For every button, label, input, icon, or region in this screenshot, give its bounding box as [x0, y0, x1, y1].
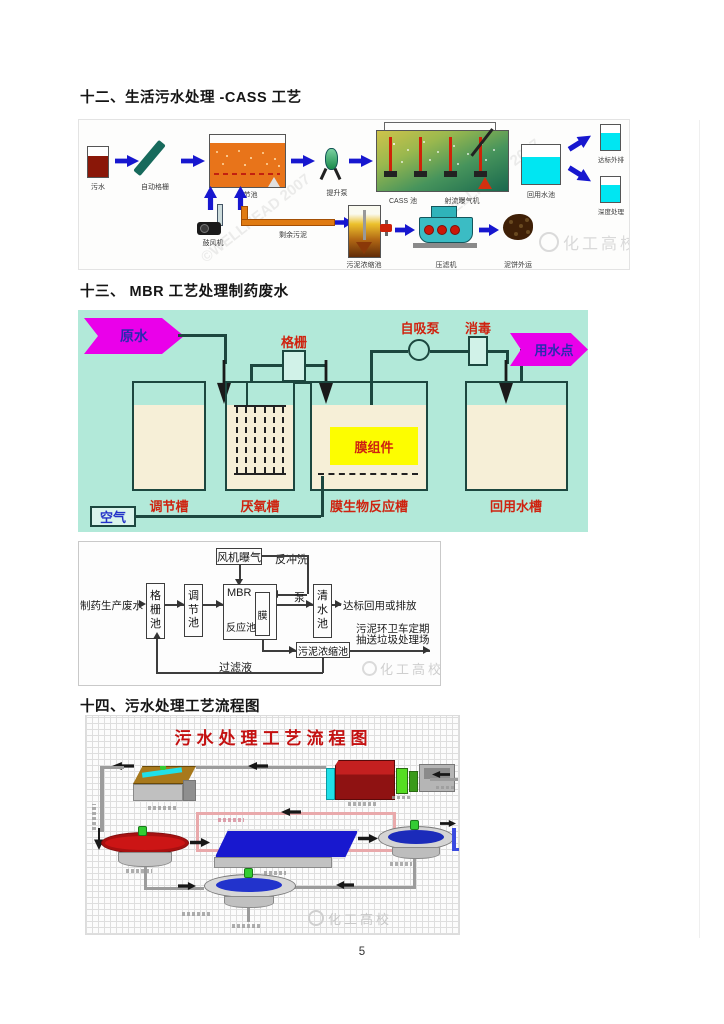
reuse-water-tank — [465, 381, 568, 491]
backwash-label: 反冲洗 — [275, 551, 308, 567]
anaerobic-media — [236, 407, 284, 473]
advanced-treatment-label: 深度处理 — [585, 206, 630, 216]
screen-label: 格栅 — [274, 332, 314, 351]
clarifier-drive — [410, 820, 419, 830]
flow-line — [350, 650, 430, 652]
clean-water-tank-label: 清水池 — [317, 590, 329, 631]
diagram-title: 污水处理工艺流程图 — [136, 724, 411, 749]
air-arrow — [204, 186, 217, 210]
fan-aeration-box: 风机曝气 — [216, 548, 262, 565]
tiny-label — [390, 862, 412, 866]
pipe — [413, 859, 416, 889]
pipe — [100, 766, 104, 832]
flow-arrow — [349, 155, 373, 167]
tank-wedge — [268, 177, 280, 187]
pipe — [224, 334, 227, 364]
press-roller — [424, 225, 434, 235]
brand-logo-icon — [308, 910, 324, 926]
filter-press-body — [419, 217, 473, 243]
screen-tank-label: 格栅池 — [150, 590, 162, 631]
blower-fan — [200, 224, 209, 233]
tiny-label — [232, 924, 262, 928]
clarifier-base — [118, 852, 172, 867]
oxidation-ditch-side — [183, 780, 196, 801]
sludge-pipe-horizontal — [241, 219, 335, 226]
flow-arrow — [479, 224, 499, 236]
filtrate-label: 过滤液 — [219, 659, 252, 675]
aeration-tank — [335, 760, 395, 800]
oxidation-ditch-front — [133, 784, 183, 801]
disinfection-label: 消毒 — [460, 318, 496, 337]
reactor-label: 反应池 — [226, 619, 256, 634]
arrowhead — [289, 646, 296, 654]
sludge-thickener-box: 污泥浓缩池 — [296, 642, 350, 658]
tank-speckles — [216, 151, 218, 153]
aerator-rod — [419, 137, 422, 175]
sludge-note-line2: 抽送垃圾处理场 — [356, 632, 430, 647]
pipe — [250, 364, 253, 382]
equalization-tank — [209, 134, 286, 188]
pipe — [372, 350, 408, 353]
equalization-tank-label: 调节池 — [188, 590, 200, 631]
aeration-diffuser — [318, 473, 418, 475]
influent-label: 制药生产废水 — [80, 598, 143, 613]
pump-leg — [320, 168, 328, 180]
cass-tank-label: CASS 池 — [379, 196, 427, 206]
advanced-treatment-tank — [600, 176, 621, 203]
section-heading-13: 十三、 MBR 工艺处理制药废水 — [80, 280, 289, 301]
membrane-module: 膜组件 — [330, 427, 418, 465]
clarifier-drive — [138, 826, 147, 836]
clarifier-base — [224, 896, 274, 908]
pipe — [178, 334, 226, 337]
sludge-thickener-label: 污泥浓缩池 — [326, 260, 402, 270]
pipe — [294, 886, 416, 889]
tank-fill — [134, 405, 204, 489]
self-priming-pump-label: 自吸泵 — [396, 318, 444, 337]
effluent-pipe — [452, 848, 460, 851]
flow-line — [156, 639, 158, 673]
brand-logo-icon — [362, 661, 377, 676]
raw-water-banner: 原水 — [84, 318, 184, 354]
aeration-basin-front — [214, 857, 332, 868]
green-unit — [396, 768, 408, 794]
tiny-label — [436, 786, 456, 789]
equalization-tank-label: 调节槽 — [134, 496, 204, 515]
mbr-label: MBR — [227, 587, 251, 599]
aerator-rod — [389, 137, 392, 175]
auto-screen-shape — [133, 140, 166, 176]
filter-press-base — [413, 243, 477, 248]
equalization-tank — [132, 381, 206, 491]
thickener-rod — [363, 210, 366, 240]
pipe — [100, 766, 124, 769]
reuse-tank-label: 回用水槽 — [476, 496, 556, 515]
clarifier-drive — [244, 868, 253, 878]
lift-pump — [317, 146, 345, 182]
flow-arrow — [566, 130, 595, 155]
flow-arrow — [291, 155, 315, 167]
screen-tank-box: 格栅池 — [146, 583, 165, 639]
thickener-funnel — [356, 242, 372, 254]
excess-sludge-label: 剩余污泥 — [271, 230, 315, 240]
sludge-dashes — [214, 173, 280, 175]
equalization-tank-box: 调节池 — [184, 584, 203, 637]
page-number: 5 — [0, 946, 724, 958]
sludge-cake-pile — [503, 214, 533, 240]
media-frame-bottom — [234, 473, 286, 475]
document-page: { "page": { "number": "5" }, "headings":… — [0, 0, 724, 1024]
sludge-tank-water — [216, 878, 282, 892]
flow-line — [262, 640, 264, 650]
mbr-tank: 膜组件 — [310, 381, 428, 491]
discharge-tank — [600, 124, 621, 151]
tiny-label — [182, 912, 210, 916]
pump-leg — [334, 168, 342, 180]
pump-label: 泵 — [294, 589, 305, 605]
membrane-box: 膜 — [255, 592, 270, 636]
mbr-tank-label: 膜生物反应槽 — [314, 496, 424, 515]
inlet-channel — [326, 768, 335, 800]
tiny-label — [148, 806, 176, 810]
arrowhead — [335, 600, 342, 608]
tiny-label — [92, 804, 96, 830]
aerator-base — [474, 171, 487, 177]
brand-watermark: 化工高校 — [380, 659, 441, 678]
air-pipe — [321, 476, 324, 517]
brand-watermark: 化工高校 — [328, 909, 392, 928]
disinfection-unit — [468, 336, 488, 366]
arrowhead — [423, 646, 430, 654]
air-box: 空气 — [90, 506, 136, 527]
raw-sewage-jar — [87, 146, 109, 178]
lift-pump-label: 提升泵 — [317, 188, 357, 198]
pipe — [250, 364, 282, 367]
mbr-process-diagram: 原水 格栅 自吸泵 消毒 用水点 膜组件 调节槽 厌氧槽 膜生物反应槽 回 — [78, 310, 588, 532]
section-heading-14: 十四、污水处理工艺流程图 — [80, 695, 260, 716]
cass-process-diagram: ©WELLHEAD 2007 ©WELLHEAD 2007 污水 自动格栅 调节… — [78, 119, 630, 270]
decanter-pipe — [470, 128, 493, 157]
aeration-basin-top — [214, 829, 359, 859]
cass-tank — [376, 130, 509, 192]
pipe — [306, 364, 326, 367]
tiny-label — [348, 802, 376, 806]
press-roller — [450, 225, 460, 235]
tank-rim — [210, 135, 285, 143]
pipe — [430, 350, 468, 353]
arrowhead — [177, 600, 184, 608]
reuse-water-tank — [521, 144, 561, 185]
pipe — [295, 381, 310, 384]
reuse-tank-label: 回用水池 — [517, 190, 565, 200]
anaerobic-tank-label: 厌氧槽 — [225, 496, 295, 515]
aerator-rod — [449, 137, 452, 175]
brand-watermark: 化工高校 — [563, 230, 630, 254]
green-unit-small — [409, 771, 418, 792]
screen-unit — [282, 350, 306, 382]
flow-line — [262, 555, 307, 557]
flow-line — [322, 658, 324, 673]
arrowhead — [139, 600, 146, 608]
effluent-label: 达标回用或排放 — [343, 598, 417, 613]
sludge-thickener-tank — [348, 205, 381, 258]
flow-arrow — [566, 162, 595, 187]
pump-circle — [408, 339, 430, 361]
cake-transport-label: 泥饼外运 — [495, 260, 541, 270]
hopper-cone — [478, 177, 492, 189]
aerator-base — [414, 171, 427, 177]
inflow-pipe — [430, 778, 458, 781]
discharge-label: 达标外排 — [585, 154, 630, 164]
flow-arrow — [115, 155, 139, 167]
pipe — [488, 350, 508, 353]
mbr-flowchart: 风机曝气 反冲洗 制药生产废水 格栅池 调节池 MBR 反应池 膜 泵 清水池 … — [78, 541, 441, 686]
aerator-base — [384, 171, 397, 177]
tiny-label — [392, 796, 410, 799]
air-pipe — [136, 515, 321, 518]
auto-screen-label: 自动格栅 — [131, 182, 179, 192]
aerator-base — [444, 171, 457, 177]
use-point-banner: 用水点 — [510, 333, 588, 366]
press-roller — [437, 225, 447, 235]
blower-label: 鼓风机 — [191, 238, 235, 248]
arrowhead — [216, 600, 223, 608]
raw-sewage-label: 污水 — [79, 182, 117, 192]
valve-body — [380, 224, 392, 232]
sewage-flow-diagram: 污水处理工艺流程图 — [85, 715, 460, 935]
effluent-pipe — [452, 828, 456, 850]
drain-pipe — [247, 908, 250, 922]
flow-arrow — [395, 224, 415, 236]
anaerobic-tank — [225, 381, 295, 491]
flow-line — [307, 555, 309, 594]
tank-fill — [467, 405, 566, 489]
bubbles — [393, 143, 395, 145]
jet-aerator-label: 射流曝气机 — [431, 196, 493, 206]
brand-logo-icon — [539, 232, 559, 252]
filter-press-label: 压滤机 — [423, 260, 469, 270]
cake-texture — [509, 220, 513, 224]
equalization-tank-label: 调节池 — [221, 190, 273, 200]
tiny-label — [126, 869, 152, 873]
arrowhead — [306, 600, 313, 608]
clarifier-base — [392, 847, 440, 859]
section-heading-12: 十二、生活污水处理 -CASS 工艺 — [80, 86, 302, 107]
flow-arrow — [181, 155, 205, 167]
arrowhead — [153, 632, 161, 639]
clean-water-tank-box: 清水池 — [313, 584, 332, 638]
pipe — [144, 887, 204, 890]
tiny-label — [218, 818, 244, 822]
secondary-clarifier-water — [388, 830, 444, 844]
page-edge-line — [699, 120, 700, 938]
